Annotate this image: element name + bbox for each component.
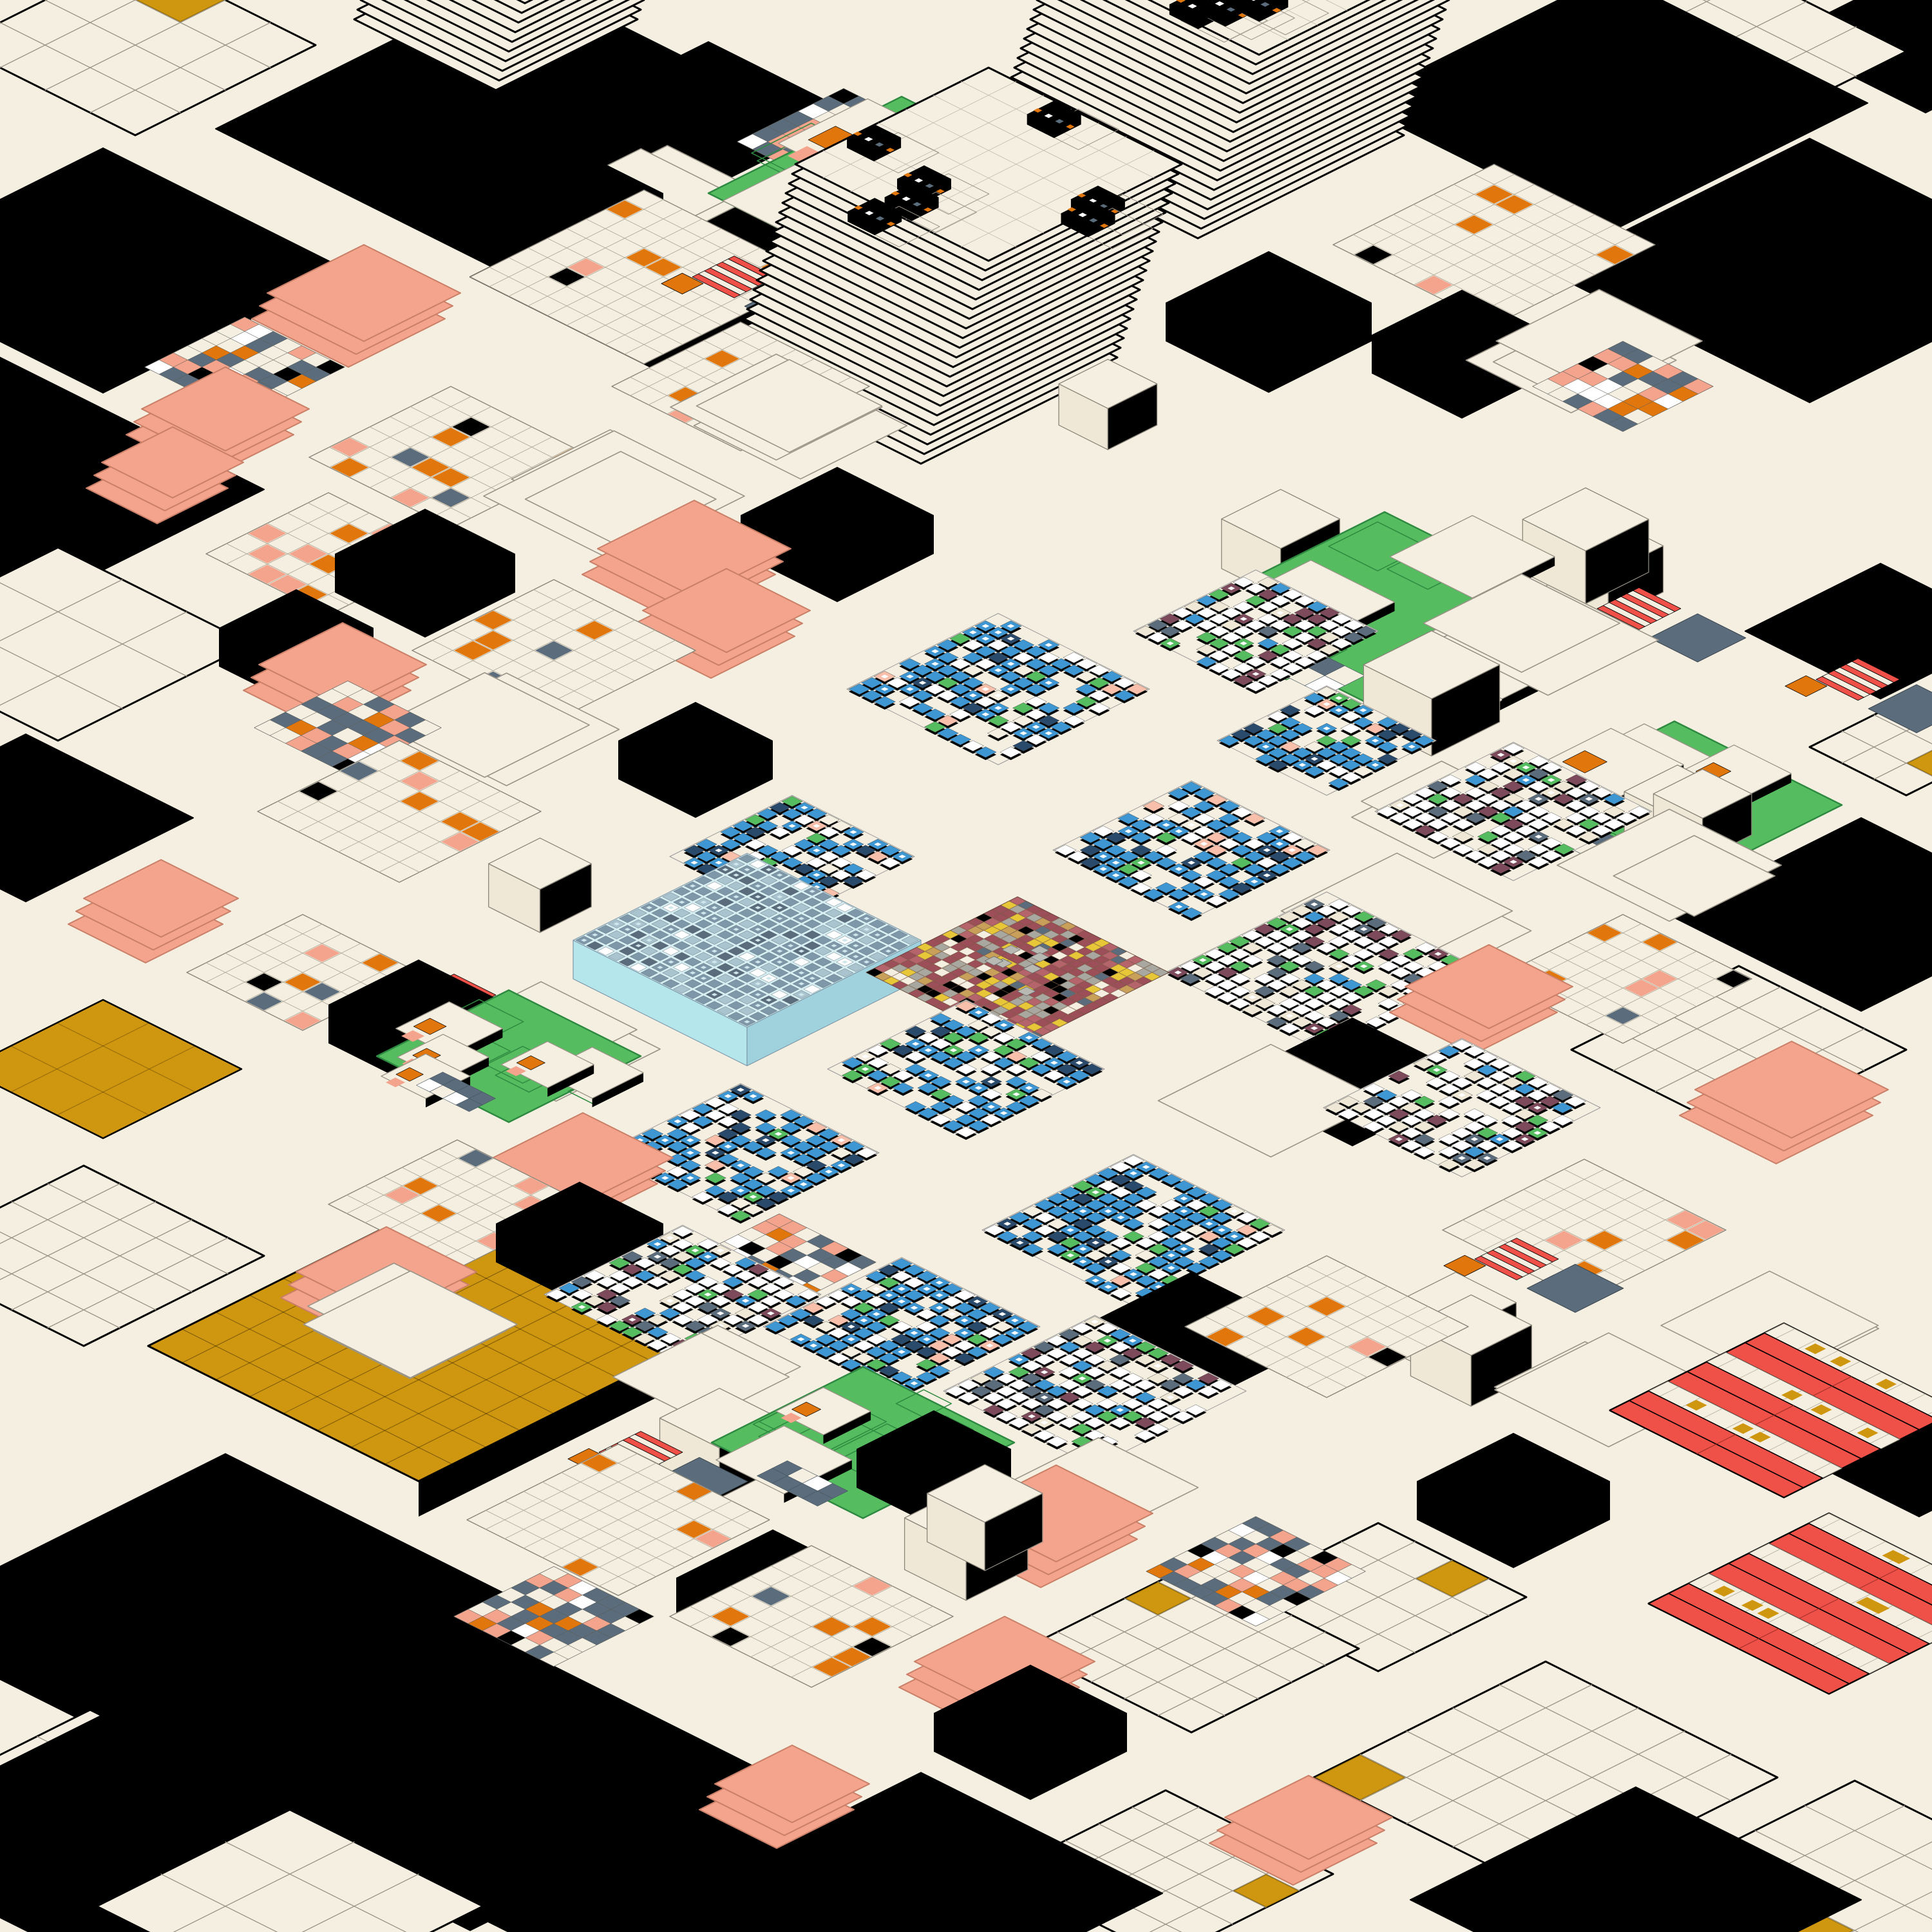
- ladder-slate-pad: [1649, 614, 1746, 662]
- outer-plate: [0, 547, 251, 741]
- generative-city-artwork: [0, 0, 1932, 1932]
- grid-19: [0, 547, 251, 741]
- bluechips-95: [847, 614, 1150, 765]
- stack-117: [68, 860, 238, 963]
- blackslab-67: [1166, 251, 1372, 393]
- gold-plate: [0, 1000, 241, 1139]
- isometric-city-canvas: [0, 0, 1932, 1932]
- bluechips-99: [982, 1155, 1285, 1306]
- blackslab-66: [741, 467, 934, 602]
- gold-31: [0, 1000, 241, 1139]
- bluechips-96: [1053, 781, 1330, 922]
- boxes-140: [489, 838, 592, 933]
- blackslab-77: [618, 702, 773, 818]
